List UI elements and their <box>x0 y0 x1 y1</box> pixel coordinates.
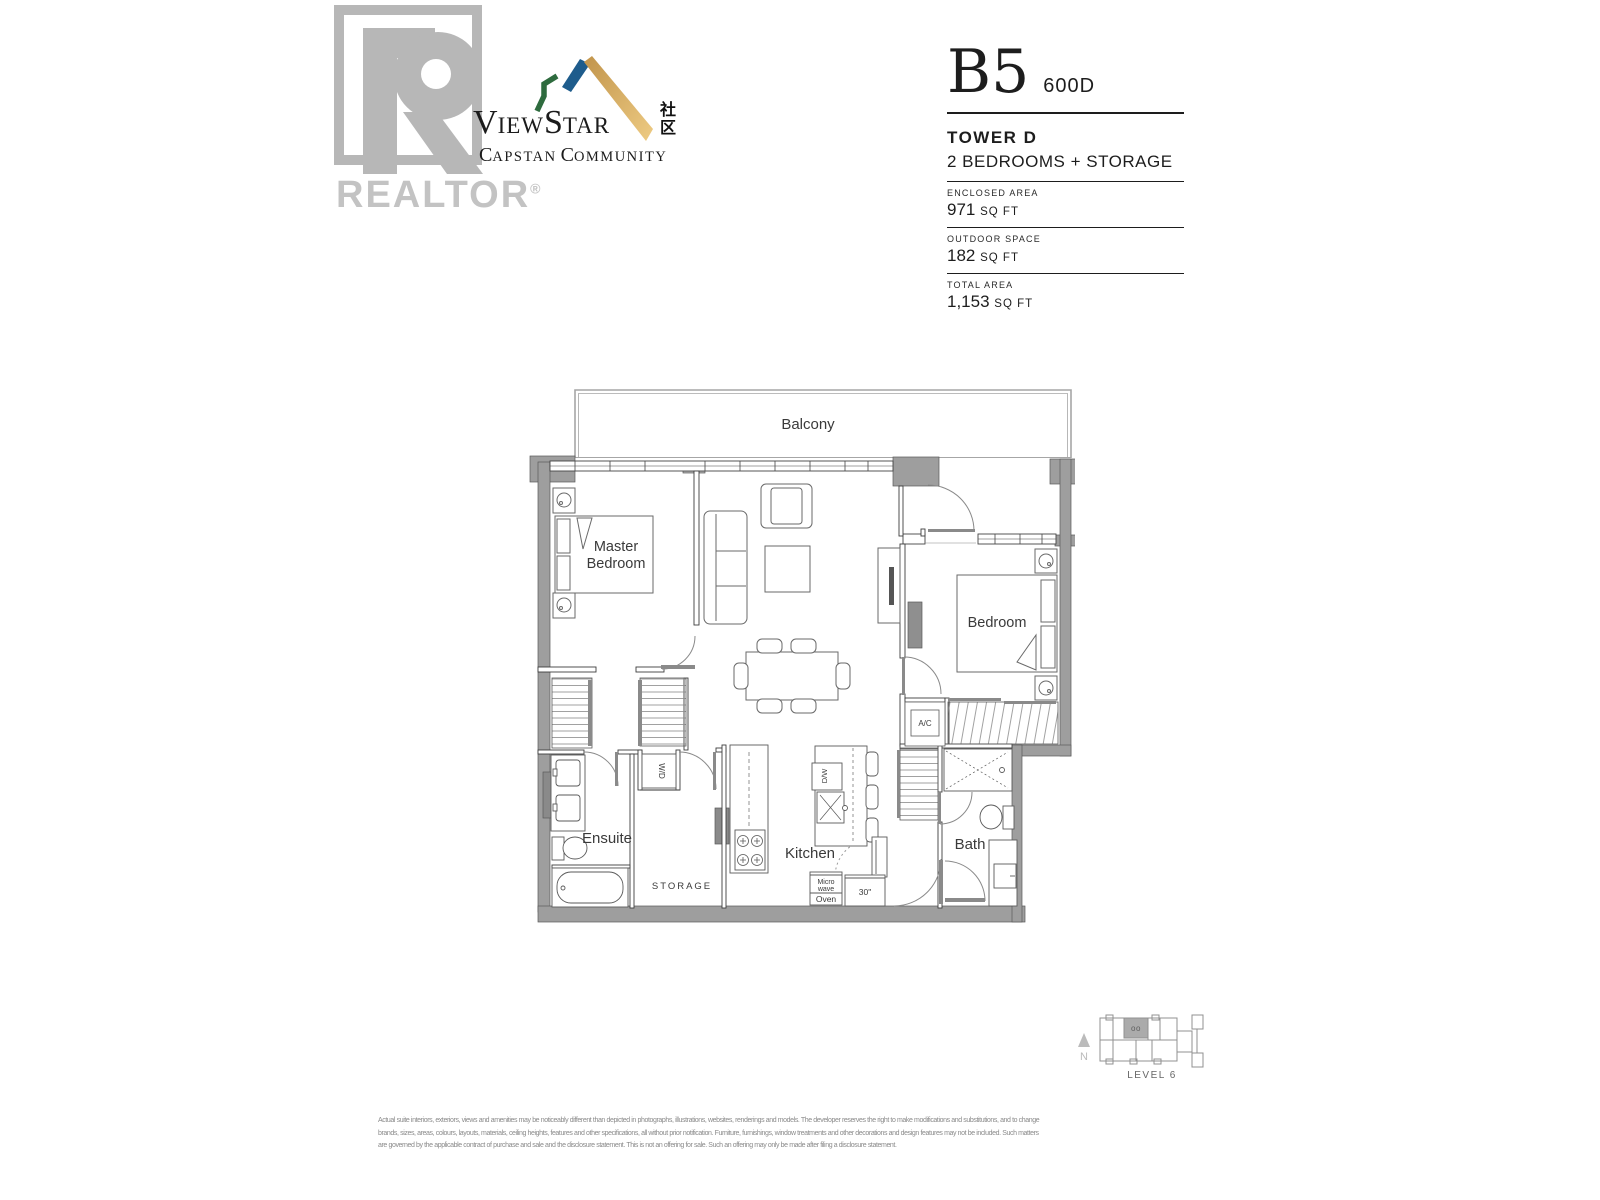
disclaimer-line-3: are governed by the applicable contract … <box>378 1140 1190 1153</box>
microwave-label-1: Micro <box>817 879 834 886</box>
storage-label: STORAGE <box>652 881 712 892</box>
viewstar-tar: TAR <box>563 113 610 138</box>
capstan-community-wordmark: CAPSTAN COMMUNITY <box>479 144 667 167</box>
realtor-wordmark-text: REALTOR <box>336 174 530 216</box>
living-dining-furniture <box>704 484 900 713</box>
community-rest: OMMUNITY <box>574 149 667 165</box>
ensuite-label: Ensuite <box>582 830 632 847</box>
north-arrow-icon: N <box>1078 1033 1090 1063</box>
chinese-char-top: 社 <box>660 102 676 120</box>
realtor-wordmark: REALTOR® <box>336 174 542 217</box>
oven-label: Oven <box>816 894 837 904</box>
viewstar-iew: IEW <box>498 113 544 138</box>
balcony-label: Balcony <box>781 416 835 433</box>
total-area-row: TOTAL AREA 1,153 SQ FT <box>947 274 1184 319</box>
enclosed-area-unit: SQ FT <box>980 206 1019 218</box>
community-c: C <box>561 144 574 166</box>
tower-name: TOWER D <box>947 128 1184 148</box>
north-label: N <box>1080 1051 1088 1063</box>
outdoor-space-row: OUTDOOR SPACE 182 SQ FT <box>947 228 1184 274</box>
dw-label: D/W <box>820 768 829 784</box>
ac-label: A/C <box>918 719 932 728</box>
kitchen-fixtures <box>730 745 887 906</box>
bedroom-label: Bedroom <box>968 615 1027 631</box>
viewstar-wordmark: VIEWSTAR <box>473 104 610 142</box>
enclosed-area-value: 971 <box>947 200 975 219</box>
master-bedroom-label-1: Master <box>594 539 638 555</box>
registered-symbol: ® <box>530 180 542 196</box>
outdoor-space-value: 182 <box>947 246 975 265</box>
keyplan: N oo LEVEL 6 <box>1050 1005 1210 1090</box>
disclaimer: Actual suite interiors, exteriors, views… <box>378 1115 1190 1153</box>
highlighted-unit-marker: oo <box>1131 1024 1141 1033</box>
master-bedroom-label-2: Bedroom <box>587 556 646 572</box>
kitchen-label: Kitchen <box>785 845 835 862</box>
total-area-value: 1,153 <box>947 292 990 311</box>
unit-description: 2 BEDROOMS + STORAGE <box>947 152 1184 182</box>
total-area-label: TOTAL AREA <box>947 280 1184 290</box>
disclaimer-line-1: Actual suite interiors, exteriors, views… <box>378 1115 1190 1128</box>
microwave-label-2: wave <box>817 886 834 893</box>
enclosed-area-row: ENCLOSED AREA 971 SQ FT <box>947 182 1184 228</box>
floorplan-drawing: Balcony Master Bedroom Bedroom Ensuite S… <box>525 380 1075 925</box>
viewstar-s: S <box>544 104 563 141</box>
unit-info-block: B5600D TOWER D 2 BEDROOMS + STORAGE ENCL… <box>947 42 1184 319</box>
bath-label: Bath <box>955 836 986 853</box>
building-outline <box>1100 1015 1203 1067</box>
total-area-unit: SQ FT <box>994 298 1033 310</box>
wd-label: W/D <box>657 763 666 779</box>
plan-code: B5 <box>947 37 1029 107</box>
enclosed-area-label: ENCLOSED AREA <box>947 188 1184 198</box>
outdoor-space-label: OUTDOOR SPACE <box>947 234 1184 244</box>
level-label: LEVEL 6 <box>1127 1070 1177 1081</box>
viewstar-v: V <box>473 104 498 141</box>
chinese-char-bottom: 区 <box>660 120 676 138</box>
fridge-size-label: 30" <box>859 887 871 897</box>
viewstar-chinese: 社 区 <box>660 102 676 138</box>
outdoor-space-unit: SQ FT <box>980 252 1019 264</box>
plan-code-row: B5600D <box>947 42 1184 114</box>
capstan-rest: APSTAN <box>492 149 556 165</box>
disclaimer-line-2: brands, sizes, areas, colours, layouts, … <box>378 1128 1190 1141</box>
unit-number: 600D <box>1043 75 1095 97</box>
capstan-c: C <box>479 144 492 166</box>
